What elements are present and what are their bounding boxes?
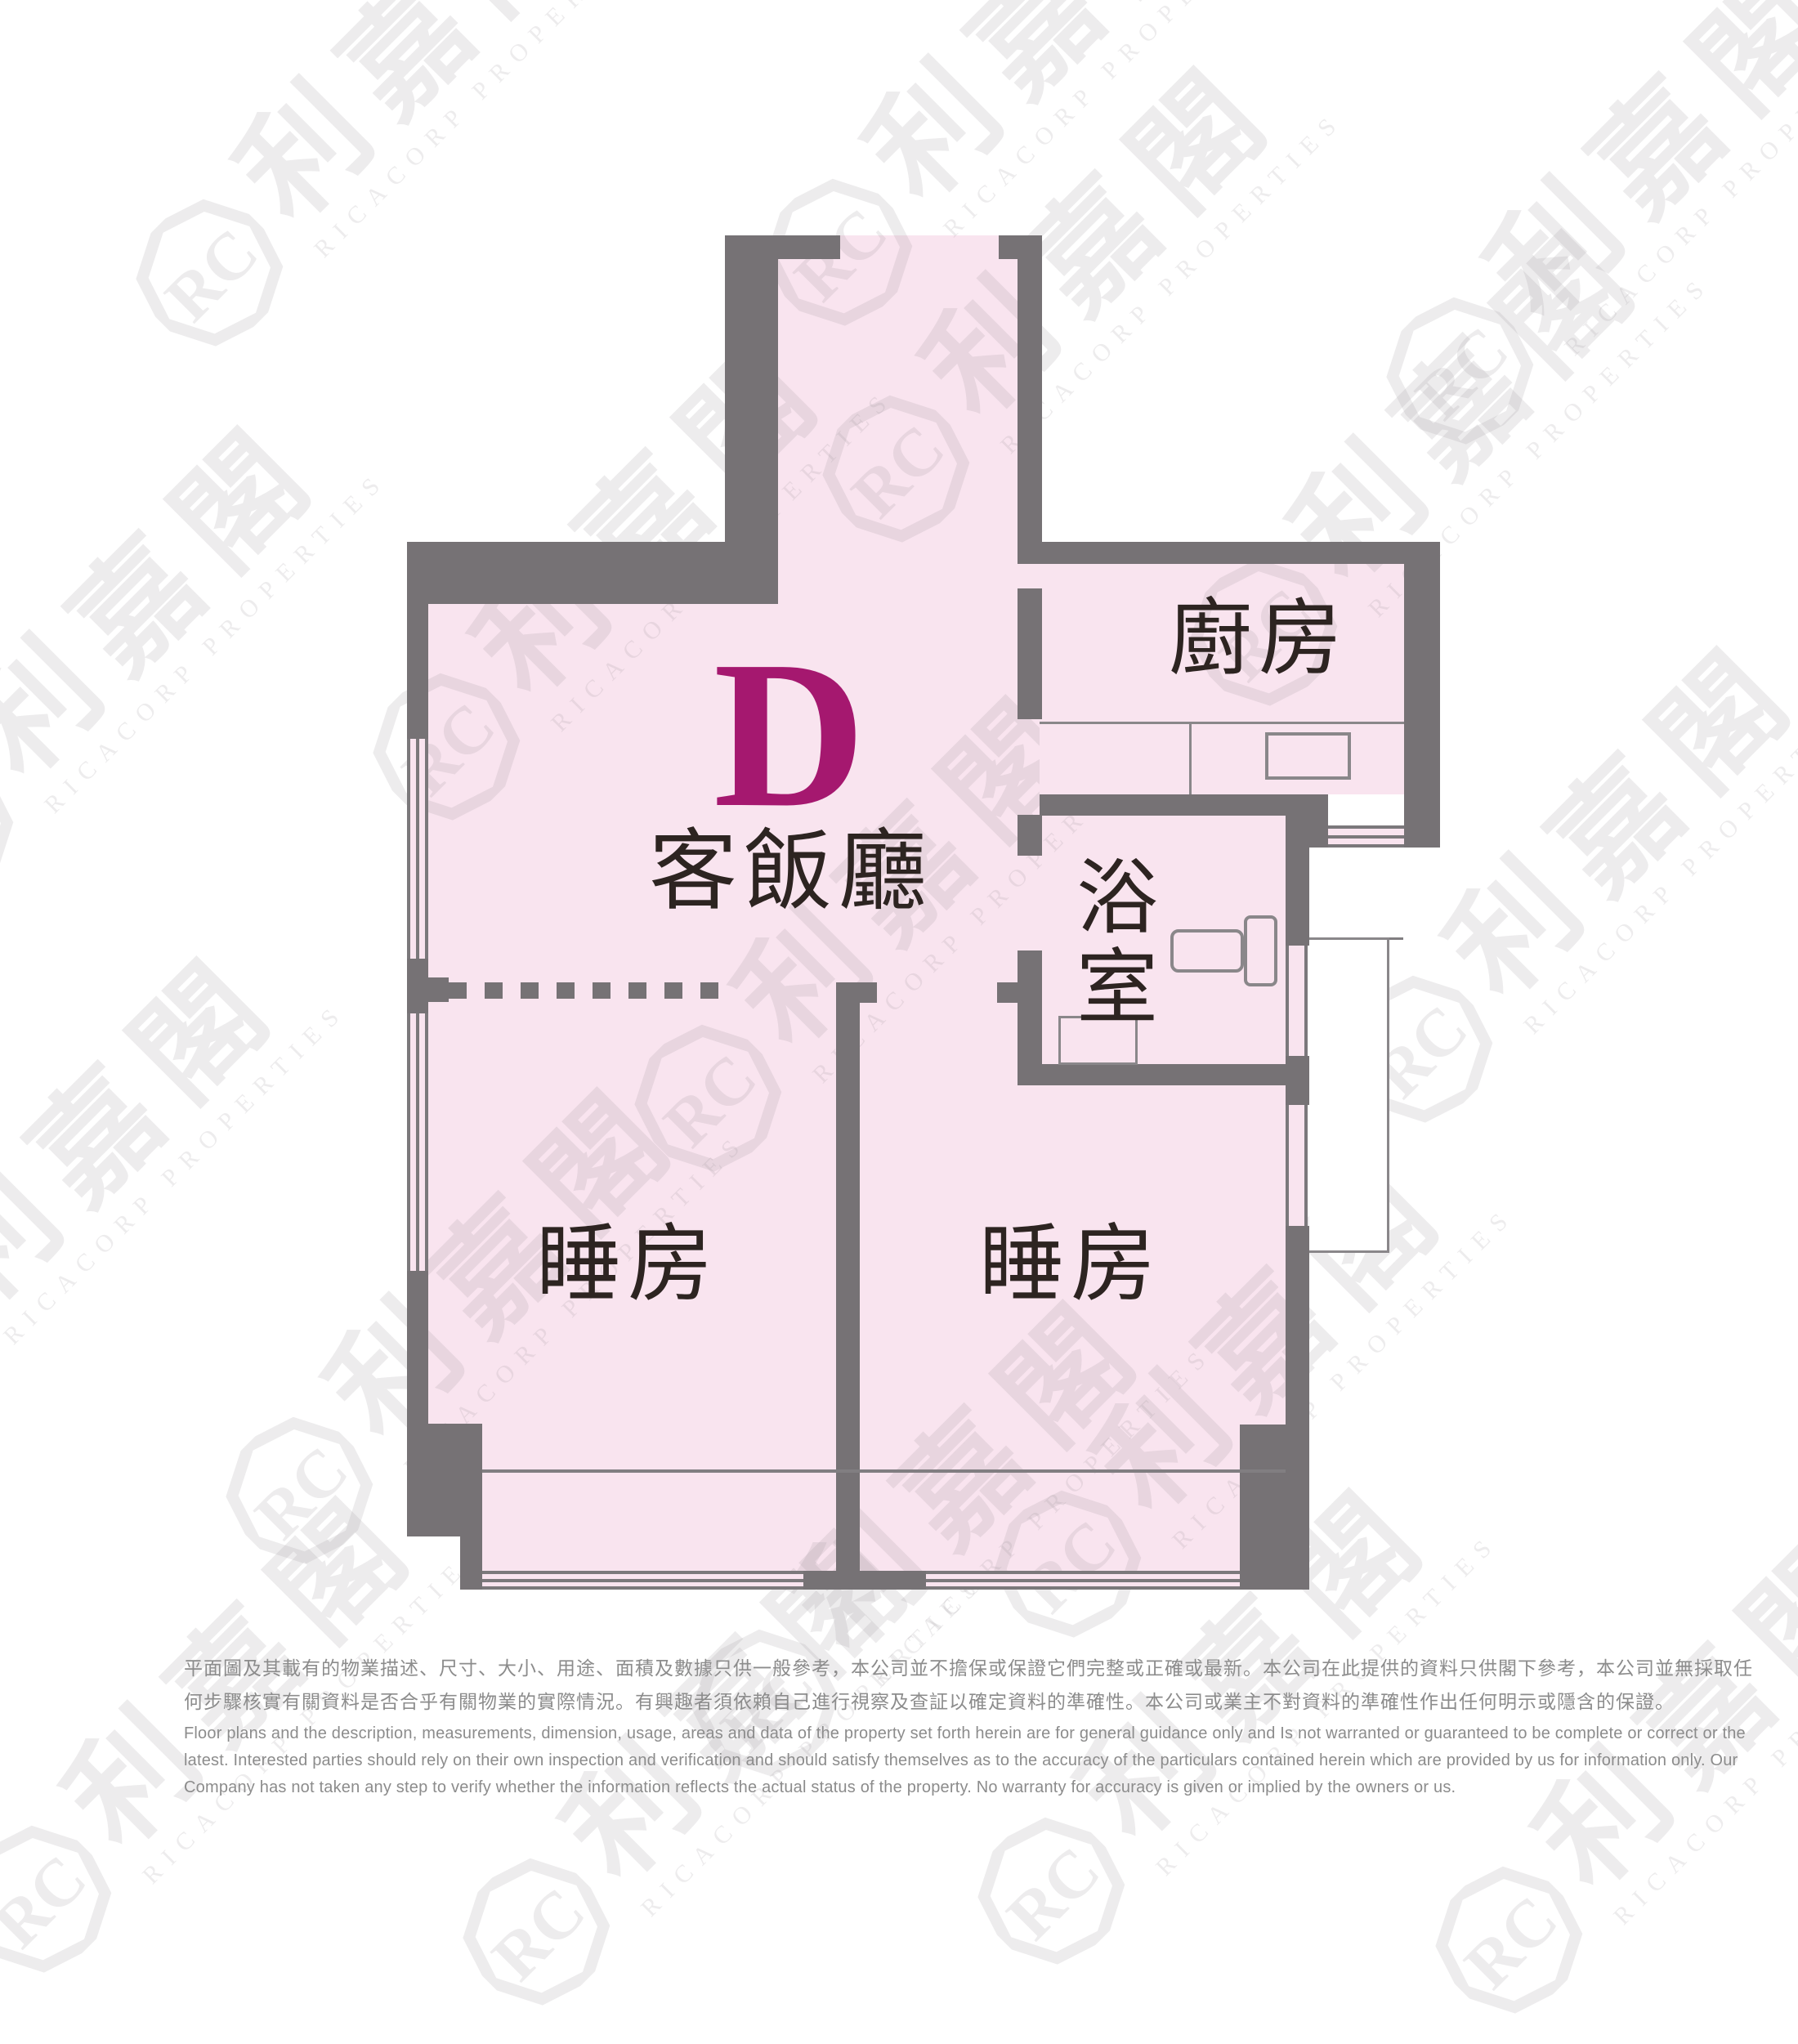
wall-kitchen-bottom-stub <box>1309 794 1328 848</box>
disclaimer-en-line3: Company has not taken any step to verify… <box>184 1778 1456 1797</box>
wall-bathroom-bottom <box>1019 1064 1286 1085</box>
disclaimer-en-line2: latest. Interested parties should rely o… <box>184 1751 1738 1770</box>
svg-text:RC: RC <box>1402 312 1523 433</box>
window-bathroom-right <box>1286 946 1308 1056</box>
kitchen-counter-divider <box>1189 724 1192 794</box>
wall-left-pier <box>407 959 428 1013</box>
watermark-text: 利嘉閣 RICACORP PROPERTIES <box>219 0 663 263</box>
wall-kitchen-right-outer <box>1404 542 1440 848</box>
wall-left-bottom-step <box>460 1536 482 1590</box>
dashed-partition <box>449 982 727 999</box>
floor-plan-canvas: RC 利嘉閣 RICACORP PROPERTIES RC 利嘉閣RICACOR… <box>0 0 1798 1798</box>
room-entry-corridor-fill <box>778 235 1018 604</box>
wall-corridor-right-lower <box>1018 588 1042 719</box>
room-label-bedroom-right: 睡房 <box>979 1195 1162 1318</box>
wall-bottom-center-pier <box>803 1571 926 1590</box>
kitchen-counter <box>1040 722 1404 794</box>
wall-bathroom-left-stub <box>1018 815 1042 856</box>
disclaimer-zh-line2: 何步驟核實有關資料是否合乎有關物業的實際情況。有興趣者須依賴自己進行視察及查証以… <box>184 1686 1675 1714</box>
room-label-living-dining: 客飯廳 <box>649 800 933 928</box>
logo-monogram: RC <box>151 214 272 335</box>
wall-right-mid-upper <box>1286 816 1309 946</box>
window-left-upper <box>407 739 428 959</box>
svg-text:RC: RC <box>1451 1881 1572 2002</box>
svg-text:RC: RC <box>241 1432 362 1553</box>
kitchen-passage-opening <box>1018 719 1042 815</box>
watermark: RC 利嘉閣RICACORP PROPERTIES <box>1356 0 1798 475</box>
toilet-bowl-fixture <box>1170 929 1244 973</box>
wall-left-bottom-pier <box>407 1424 482 1536</box>
external-shaft-top-nub <box>1389 937 1403 940</box>
wall-living-top <box>407 542 778 604</box>
disclaimer-en-line1: Floor plans and the description, measure… <box>184 1724 1746 1743</box>
svg-text:RC: RC <box>0 770 2 891</box>
disclaimer-zh-line1: 平面圖及其載有的物業描述、尺寸、大小、用途、面積及數據只供一般參考，本公司並不擔… <box>184 1653 1753 1680</box>
watermark: RC 利嘉閣RICACORP PROPERTIES <box>0 906 352 1464</box>
watermark-brand-cjk: 利嘉閣 <box>219 0 640 240</box>
wall-left-lower <box>407 1271 428 1424</box>
room-bedroom-left-bay-fill <box>482 1536 836 1571</box>
wall-corridor-left <box>725 235 778 542</box>
wall-left-upper <box>407 604 428 739</box>
wall-corridor-right-upper <box>1018 235 1042 564</box>
room-label-kitchen: 廚房 <box>1169 572 1348 692</box>
window-left-lower <box>407 1013 428 1271</box>
wall-kitchen-top <box>1018 542 1404 564</box>
svg-text:RC: RC <box>0 1840 101 1961</box>
watermark: RC 利嘉閣 RICACORP PROPERTIES <box>105 0 663 377</box>
wall-bedroom2-door-nub <box>997 982 1019 1003</box>
svg-text:RC: RC <box>993 1832 1114 1953</box>
window-kitchen-bottom <box>1328 825 1404 848</box>
room-label-bedroom-left: 睡房 <box>536 1195 719 1318</box>
toilet-tank-fixture <box>1244 915 1277 986</box>
wall-bedroom-divider <box>836 982 860 1571</box>
wall-right-mid <box>1286 1056 1309 1105</box>
wall-corridor-top-left <box>725 235 840 259</box>
bay-window-line <box>482 1469 1286 1473</box>
window-bedroom-right <box>1286 1105 1308 1226</box>
ricacorp-logo-icon: RC <box>111 174 307 370</box>
wall-kitchen-bottom <box>1040 794 1328 816</box>
wall-divider-nub <box>860 982 877 1003</box>
watermark: RC 利嘉閣RICACORP PROPERTIES <box>0 375 393 933</box>
bathroom-door-opening <box>1018 856 1042 950</box>
kitchen-door-opening <box>1018 564 1042 588</box>
wall-dashed-start-nub <box>428 977 449 1002</box>
room-label-bathroom: 浴室 <box>1050 854 1169 1034</box>
window-bedroom-right-bottom <box>926 1571 1240 1590</box>
watermark-brand-en: RICACORP PROPERTIES <box>309 0 663 263</box>
svg-text:RC: RC <box>478 1873 599 1994</box>
wall-bottom-right-pier <box>1240 1425 1309 1590</box>
external-shaft-outline <box>1309 937 1389 1253</box>
kitchen-appliance-sink <box>1265 732 1351 780</box>
window-bedroom-left-bottom <box>482 1571 803 1590</box>
